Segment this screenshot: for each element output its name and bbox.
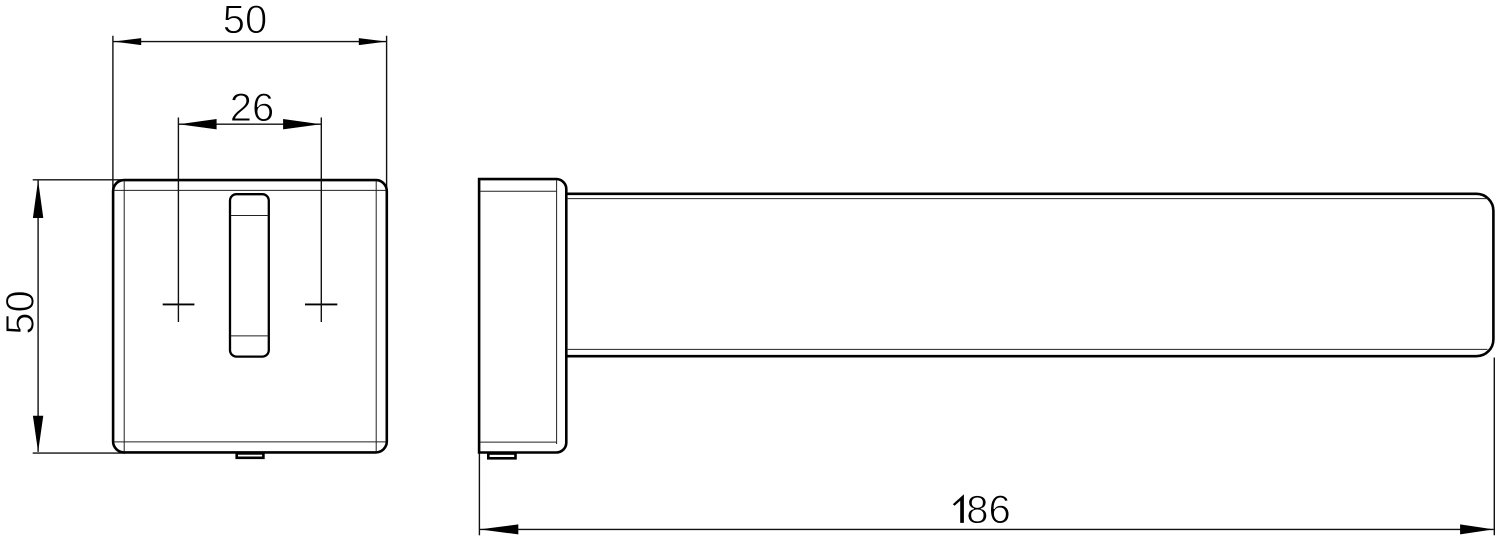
svg-text:26: 26 bbox=[230, 86, 275, 130]
svg-text:86: 86 bbox=[966, 488, 1011, 532]
svg-text:50: 50 bbox=[0, 290, 43, 335]
svg-text:50: 50 bbox=[223, 0, 268, 42]
